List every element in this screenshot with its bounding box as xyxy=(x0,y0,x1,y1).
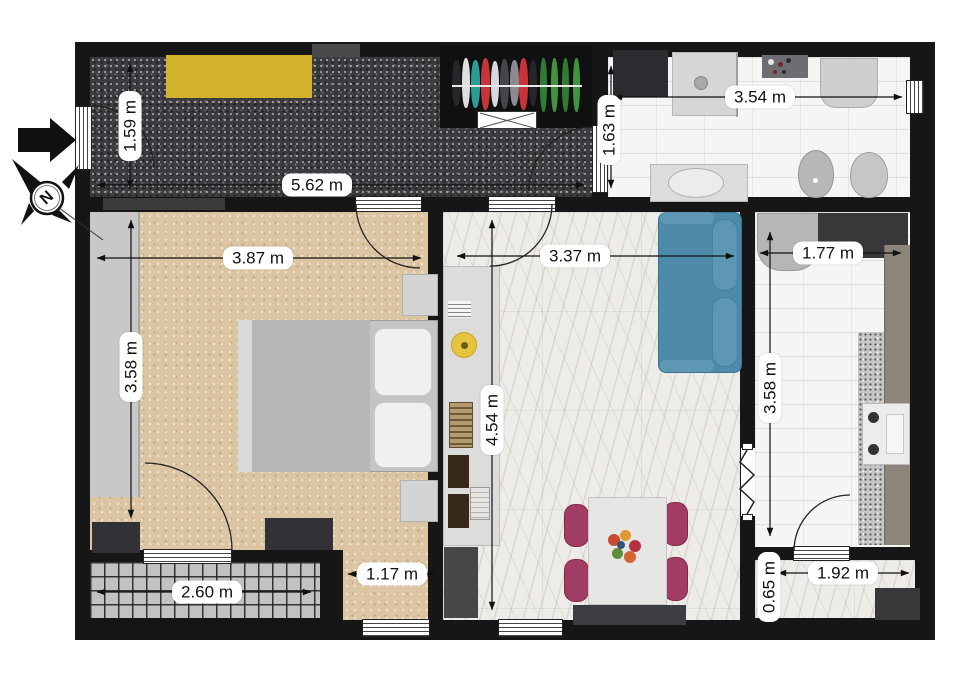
toiletry xyxy=(786,58,791,63)
sofa-cushion xyxy=(712,219,738,291)
wardrobe-clothes xyxy=(471,60,480,108)
magazines xyxy=(470,487,490,520)
chest xyxy=(265,518,333,550)
opening-cap xyxy=(742,443,753,450)
dim-balcony-right-depth: 0.65 m xyxy=(758,552,781,622)
compass-north-label: N xyxy=(37,188,57,208)
entrance-door xyxy=(75,106,92,170)
dim-living-width: 3.37 m xyxy=(540,245,610,268)
wardrobe-clothes xyxy=(510,60,519,106)
tray xyxy=(448,455,469,488)
entrance-arrow-icon xyxy=(18,118,76,162)
dim-balcony-left-width: 2.60 m xyxy=(172,581,242,604)
slatted-tray xyxy=(449,402,473,448)
wardrobe-clothes xyxy=(491,61,499,107)
wall-opening xyxy=(741,448,755,516)
dim-hallway-depth: 1.59 m xyxy=(119,91,142,161)
flower-bouquet xyxy=(612,548,623,559)
floor-plan: N 1.59 m 5.62 m 3.54 m 1.63 m 3.87 m 3.5… xyxy=(0,0,960,679)
balcony-left-doorway xyxy=(143,549,232,564)
balcony-right-doorway xyxy=(793,546,850,561)
corner-cabinet xyxy=(444,547,478,618)
dining-chair xyxy=(564,559,589,602)
living-doorway xyxy=(488,196,556,212)
bidet xyxy=(850,152,888,198)
dim-bedroom-nook-width: 1.17 m xyxy=(357,563,427,586)
wardrobe-clothes xyxy=(500,59,509,109)
tv-stand xyxy=(573,605,686,625)
stove-panel xyxy=(886,414,904,454)
flower-bouquet xyxy=(620,530,631,541)
dim-bathroom-width: 3.54 m xyxy=(725,86,795,109)
sink-basin xyxy=(668,168,724,198)
dim-bathroom-depth: 1.63 m xyxy=(598,95,621,165)
wardrobe-rail xyxy=(452,85,582,87)
pillow xyxy=(374,328,432,396)
dim-living-depth: 4.54 m xyxy=(481,385,504,455)
living-window xyxy=(498,619,563,637)
toiletry xyxy=(773,70,777,74)
dining-chair xyxy=(564,504,589,547)
wardrobe-clothes xyxy=(481,58,490,110)
nightstand xyxy=(400,480,438,522)
toiletry xyxy=(768,59,774,65)
bath-cabinet xyxy=(820,58,878,108)
wardrobe-clothes xyxy=(452,60,461,106)
bed-duvet xyxy=(238,320,370,472)
shoe-bench xyxy=(477,111,537,129)
tray xyxy=(448,494,469,528)
chest xyxy=(92,522,140,553)
bedroom-doorway xyxy=(355,196,422,212)
books xyxy=(448,301,471,318)
dim-kitchen-depth: 3.58 m xyxy=(759,353,782,423)
stove-burner xyxy=(868,412,879,423)
wall-niche xyxy=(312,44,360,57)
shower-drain xyxy=(694,76,708,90)
bedroom-window xyxy=(362,619,430,637)
toiletry xyxy=(778,62,783,67)
planter xyxy=(875,588,920,620)
flower-bouquet xyxy=(624,551,636,563)
nightstand xyxy=(402,274,438,316)
bathroom-window xyxy=(906,80,924,114)
toiletry xyxy=(782,70,786,74)
kitchen-cabinet xyxy=(884,245,910,403)
opening-cap xyxy=(742,514,753,521)
dim-balcony-right-width: 1.92 m xyxy=(808,562,878,585)
dim-kitchen-width: 1.77 m xyxy=(793,242,863,265)
wardrobe-clothes xyxy=(462,58,470,108)
toilet-flush xyxy=(813,178,818,183)
sofa-cushion xyxy=(712,297,738,367)
bed-sheet-fold xyxy=(238,320,252,472)
dim-hallway-width: 5.62 m xyxy=(282,174,352,197)
dim-bedroom-depth: 3.58 m xyxy=(120,332,143,402)
kitchen-cabinet xyxy=(884,465,910,545)
dim-bedroom-width: 3.87 m xyxy=(223,247,293,270)
stove-burner xyxy=(868,444,879,455)
flower-bouquet xyxy=(617,541,625,549)
toilet xyxy=(798,150,834,198)
radiator xyxy=(103,198,225,210)
wardrobe-clothes xyxy=(529,60,537,106)
sofa-armrest xyxy=(660,360,714,372)
wardrobe-clothes xyxy=(519,58,528,110)
sofa-armrest xyxy=(660,212,714,224)
bowl-center xyxy=(461,342,468,349)
doormat xyxy=(166,55,312,98)
pillow xyxy=(374,402,432,468)
washing-machine xyxy=(613,50,668,97)
